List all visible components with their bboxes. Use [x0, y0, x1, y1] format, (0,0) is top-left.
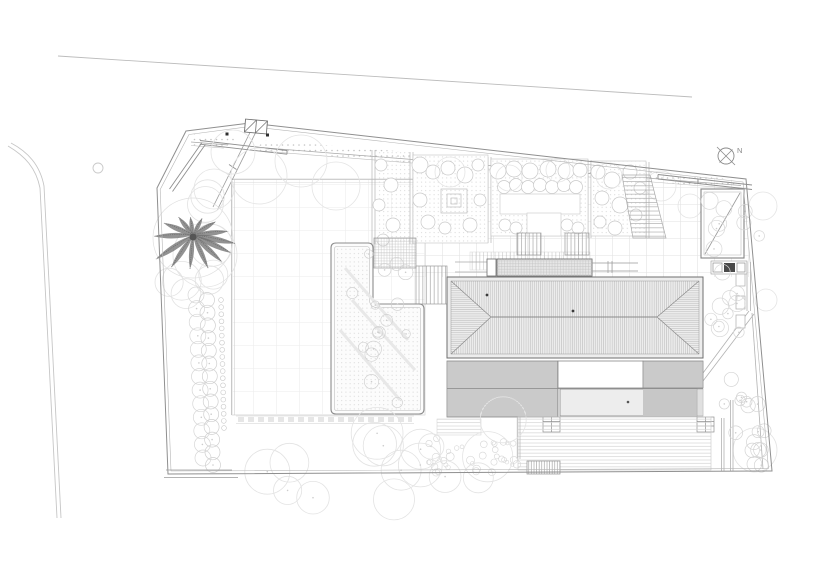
equipment-unit	[724, 263, 735, 272]
gate-post-dot	[226, 133, 229, 136]
north-arrow: N	[717, 146, 742, 165]
grid-paved-pad	[374, 238, 416, 268]
garage	[701, 189, 744, 258]
site-plan-drawing: N	[0, 0, 815, 576]
stone-path-area	[426, 419, 521, 476]
north-label: N	[737, 146, 742, 155]
pool-drain-dot	[627, 401, 630, 404]
side-garden-paths	[703, 262, 763, 471]
roof-vent	[572, 310, 575, 313]
garden-beds	[372, 150, 649, 246]
hedge-bead-line	[219, 298, 227, 431]
entry-stair	[565, 233, 589, 255]
utility-marker-circle	[93, 163, 103, 173]
site-plan-page: N	[0, 0, 815, 576]
main-house-hipped-roof	[447, 277, 703, 358]
entry-stair	[517, 233, 541, 255]
pergola-and-pool	[447, 361, 703, 417]
roof-vent	[486, 294, 489, 297]
timber-deck	[517, 417, 711, 474]
pool-stair	[416, 266, 447, 304]
roof-slope-north	[451, 281, 699, 317]
gate-post-dot	[266, 134, 269, 137]
roof-slope-south	[451, 317, 699, 354]
hedge-shrub-column	[188, 287, 211, 466]
side-garden-trees-lower	[719, 372, 771, 472]
courtyard-void	[558, 361, 643, 388]
